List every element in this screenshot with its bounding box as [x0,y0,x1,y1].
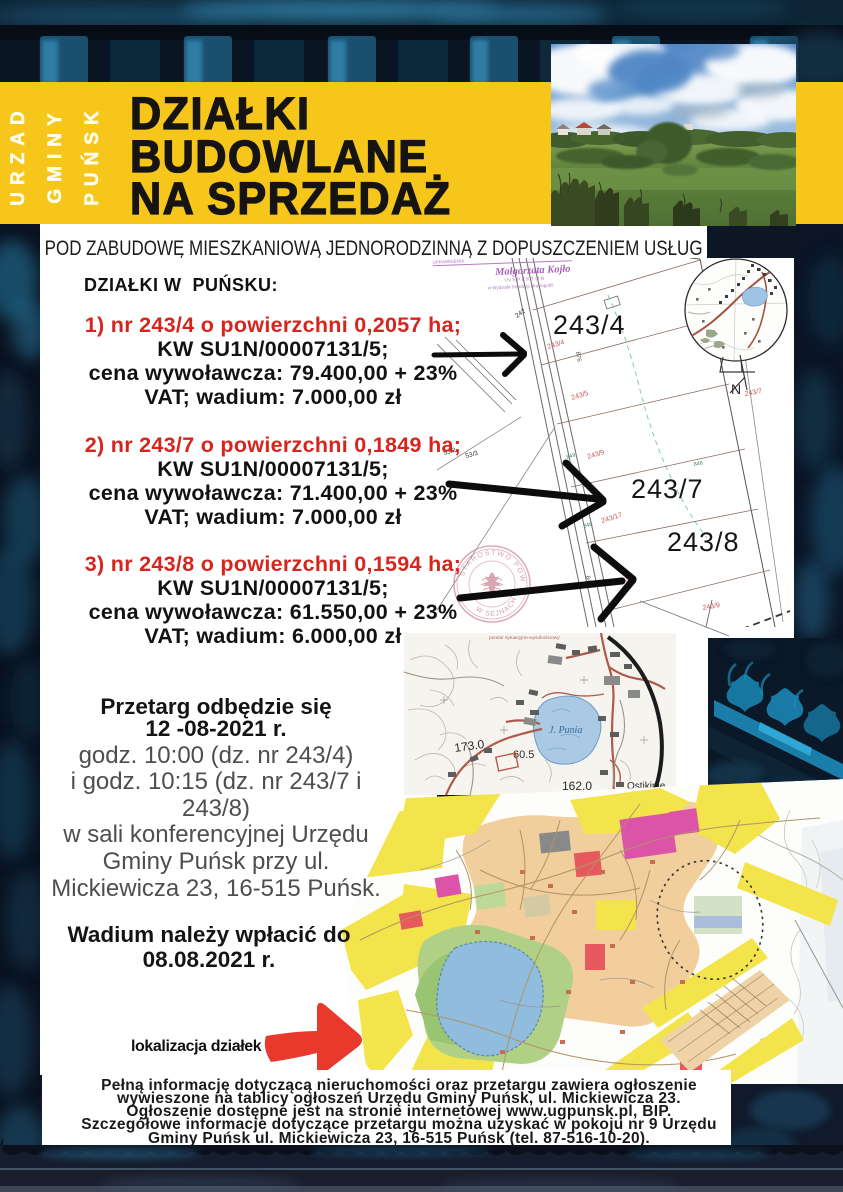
svg-text:243/7: 243/7 [631,474,704,504]
svg-text:243/8: 243/8 [667,527,740,557]
svg-text:J. Punia: J. Punia [549,725,582,736]
svg-text:243/4: 243/4 [553,310,626,340]
svg-text:pomiar sytuacyjno-wysokościowy: pomiar sytuacyjno-wysokościowy [489,635,560,641]
